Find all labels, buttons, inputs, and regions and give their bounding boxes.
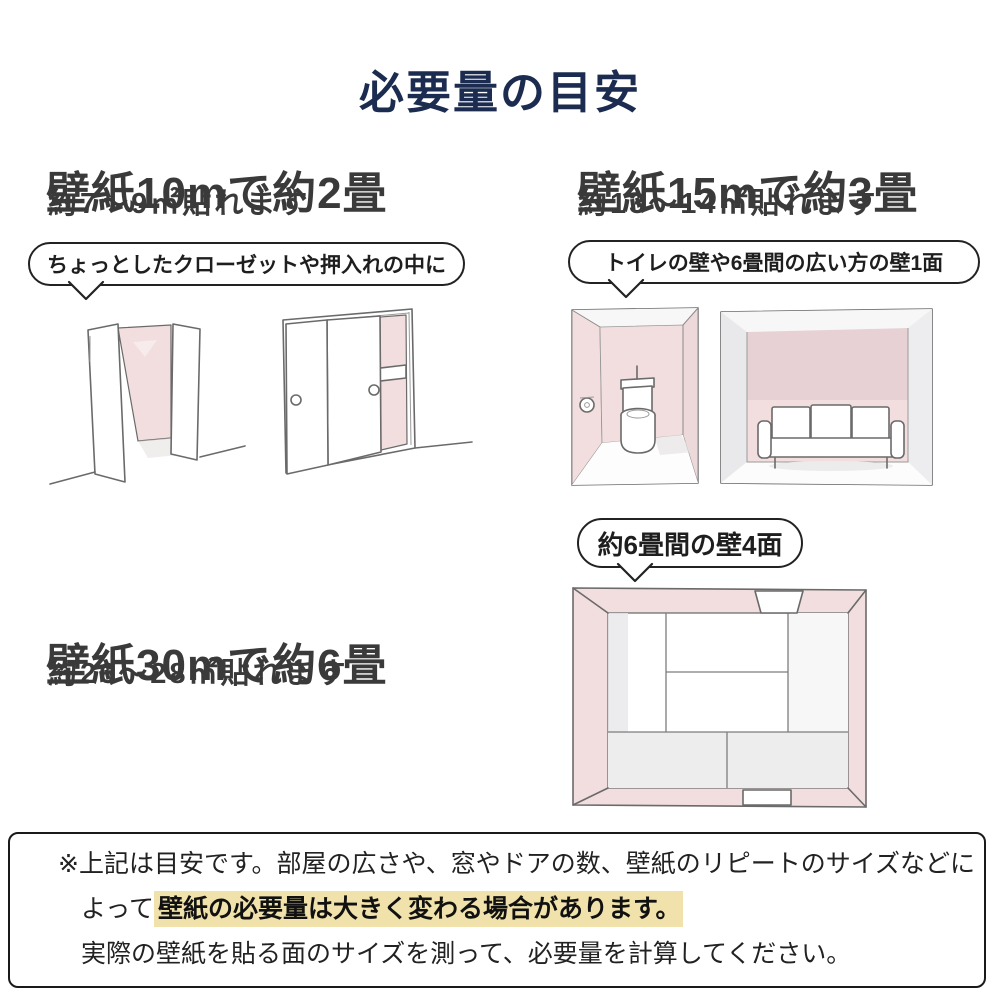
- closet-illustrations: [40, 302, 480, 507]
- bubble-15m-label: トイレの壁や6畳間の広い方の壁1面: [605, 247, 943, 277]
- bubble-10m: ちょっとしたクローゼットや押入れの中に: [28, 242, 465, 286]
- note-box: ※上記は目安です。部屋の広さや、窓やドアの数、壁紙のリピートのサイズなどに よっ…: [8, 832, 986, 988]
- bubble-6tatami-label: 約6畳間の壁4面: [598, 525, 783, 562]
- wallpaper-quantity-guide: 必要量の目安 壁紙10mで約2畳 約7〜9㎡貼れます ちょっとしたクローゼットや…: [0, 0, 1000, 1000]
- page-title: 必要量の目安: [0, 56, 1000, 121]
- closet-interior-wall: [380, 315, 407, 450]
- subtext-15m: 約13〜14㎡貼れます: [578, 180, 879, 222]
- room-door-opening: [755, 591, 803, 613]
- subtext-10m: 約7〜9㎡貼れます: [48, 180, 310, 222]
- living-room-illustration: [715, 300, 940, 495]
- room-entry-step: [743, 790, 791, 805]
- closet-right-door: [171, 324, 200, 460]
- toilet-room-illustration: [560, 300, 710, 495]
- bubble-6tatami: 約6畳間の壁4面: [577, 518, 803, 568]
- open-closet-illustration: [50, 324, 245, 484]
- speech-bubble-tail-icon: [66, 282, 106, 302]
- note-line-2-prefix: よって: [81, 895, 154, 923]
- bubble-10m-label: ちょっとしたクローゼットや押入れの中に: [47, 249, 446, 279]
- subtext-30m: 約26〜28㎡貼れます: [48, 650, 349, 692]
- accent-wall: [747, 328, 908, 400]
- closet-shelf: [380, 365, 406, 381]
- toilet-paper-holder-icon: [580, 397, 594, 412]
- toilet-icon: [621, 366, 655, 453]
- note-line-3: 実際の壁紙を貼る面のサイズを測って、必要量を計算してください。: [81, 932, 966, 977]
- note-highlight: 壁紙の必要量は大きく変わる場合があります。: [154, 891, 683, 927]
- bubble-15m: トイレの壁や6畳間の広い方の壁1面: [568, 240, 980, 284]
- sliding-door-closet-illustration: [283, 309, 472, 474]
- closet-left-door: [88, 324, 125, 482]
- six-tatami-room-top-view-illustration: [565, 580, 875, 815]
- note-line-2: よって壁紙の必要量は大きく変わる場合があります。: [81, 887, 966, 932]
- speech-bubble-tail-icon: [606, 280, 646, 300]
- note-line-1: ※上記は目安です。部屋の広さや、窓やドアの数、壁紙のリピートのサイズなどに: [81, 842, 966, 887]
